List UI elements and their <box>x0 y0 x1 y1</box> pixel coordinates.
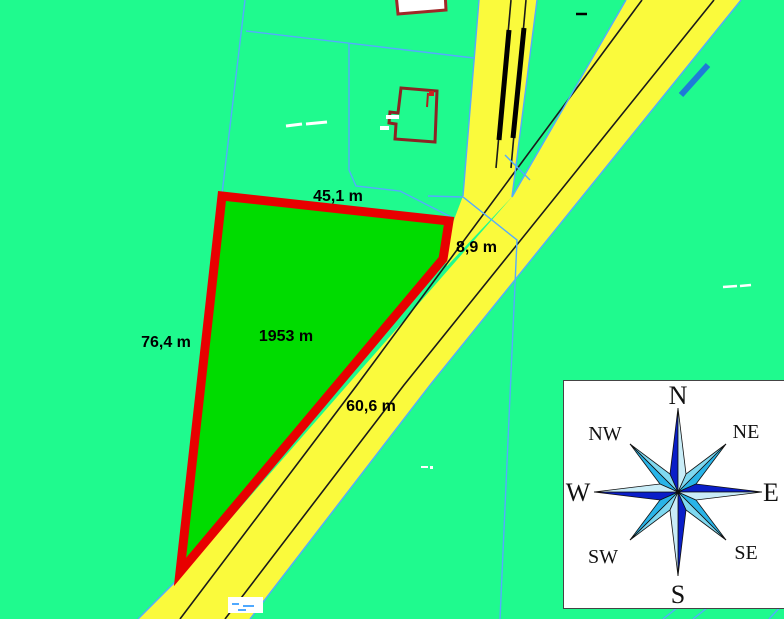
compass-label-s: S <box>671 580 685 609</box>
map-white-dash <box>286 124 302 126</box>
compass-panel: N S W E NW NE SW SE <box>564 381 784 610</box>
compass-label-n: N <box>669 381 688 410</box>
building-inner-mark <box>429 91 434 96</box>
map-white-dash <box>306 122 327 124</box>
map-white-dash <box>723 286 737 287</box>
building-top <box>396 0 446 14</box>
measurement-right-edge: 8,9 m <box>456 239 497 256</box>
map-white-dash <box>740 285 751 286</box>
map-viewport[interactable]: 45,1 m 8,9 m 76,4 m 1953 m 60,6 m N <box>0 0 784 619</box>
compass-label-se: SE <box>734 542 757 564</box>
measurement-left-edge: 76,4 m <box>141 334 191 351</box>
compass-label-nw: NW <box>588 423 621 445</box>
measurement-top-edge: 45,1 m <box>313 188 363 205</box>
compass-label-ne: NE <box>733 421 760 443</box>
map-white-dot <box>430 466 433 469</box>
map-canvas[interactable]: 45,1 m 8,9 m 76,4 m 1953 m 60,6 m N <box>0 0 784 619</box>
compass-label-sw: SW <box>588 546 618 568</box>
building-inner-wall <box>427 93 428 107</box>
small-map-label <box>228 597 263 613</box>
compass-label-e: E <box>763 478 779 507</box>
measurement-road-edge: 60,6 m <box>346 398 396 415</box>
compass-label-w: W <box>566 478 591 507</box>
map-white-dash <box>380 126 389 130</box>
map-white-dash <box>386 115 399 119</box>
measurement-area: 1953 m <box>259 328 313 345</box>
